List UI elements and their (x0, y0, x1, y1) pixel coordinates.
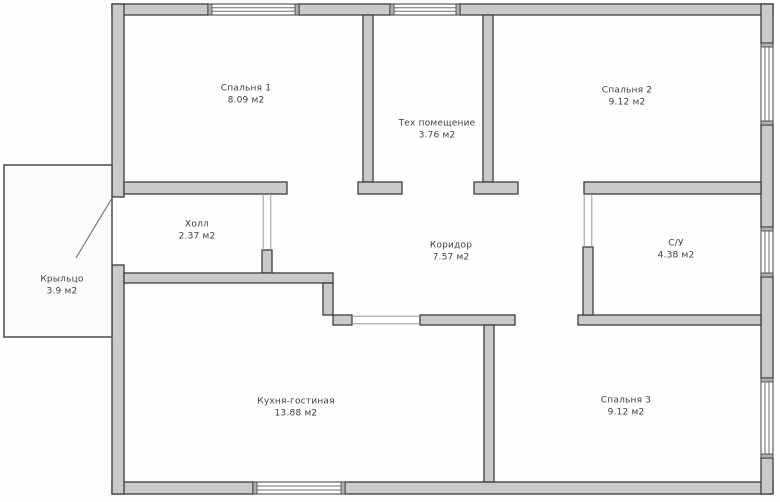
wall-middle-segment (474, 182, 518, 194)
room-area: 9.12 м2 (602, 97, 652, 109)
room-name: Крыльцо (40, 275, 83, 287)
room-area: 3.76 м2 (399, 130, 476, 142)
wall-jog (323, 283, 333, 315)
wall-left-segment (112, 265, 124, 494)
room-label-bathroom: С/У 4.38 м2 (658, 239, 695, 262)
wall-right-segment (761, 458, 773, 494)
room-area: 3.9 м2 (40, 286, 83, 298)
room-label-bedroom-1: Спальня 1 8.09 м2 (221, 84, 271, 107)
wall-right-segment (761, 4, 773, 43)
door-openings (263, 194, 592, 324)
wall-bedroom1-tech (363, 15, 373, 182)
wall-middle-segment (358, 182, 402, 194)
wall-top-segment (112, 4, 208, 15)
wall-corridor-bottom-segment (420, 315, 515, 325)
wall-middle-segment (584, 182, 761, 194)
room-name: Кухня-гостиная (257, 397, 334, 409)
wall-left-segment (112, 4, 124, 197)
room-label-tech-room: Тех помещение 3.76 м2 (399, 119, 476, 142)
room-label-porch: Крыльцо 3.9 м2 (40, 275, 83, 298)
wall-bottom-segment (345, 482, 773, 494)
wall-top-segment (460, 4, 773, 15)
room-area: 4.38 м2 (658, 250, 695, 262)
porch-outline (4, 165, 112, 337)
wall-corridor-bottom-segment (333, 315, 352, 325)
room-name: Тех помещение (399, 119, 476, 131)
room-label-hall: Холл 2.37 м2 (179, 220, 216, 243)
porch (4, 165, 112, 337)
room-label-kitchen-living: Кухня-гостиная 13.88 м2 (257, 397, 334, 420)
wall-right-segment (761, 125, 773, 227)
room-area: 9.12 м2 (601, 407, 651, 419)
window-kitchen (253, 482, 345, 494)
wall-right-segment (761, 277, 773, 378)
wall-tech-bedroom2 (483, 15, 493, 182)
room-name: Коридор (430, 241, 472, 253)
room-area: 8.09 м2 (221, 95, 271, 107)
window-bedroom-1 (208, 4, 299, 15)
window-bathroom (761, 227, 773, 277)
wall-corridor-bottom-segment (578, 315, 761, 325)
room-area: 13.88 м2 (257, 408, 334, 420)
room-label-bedroom-3: Спальня 3 9.12 м2 (601, 396, 651, 419)
room-name: Спальня 3 (601, 396, 651, 408)
wall-middle-segment (124, 182, 287, 194)
wall-hall-bottom (124, 273, 333, 283)
wall-hall-corridor (262, 250, 272, 273)
room-name: Спальня 1 (221, 84, 271, 96)
wall-top-segment (299, 4, 390, 15)
room-area: 2.37 м2 (179, 231, 216, 243)
wall-corridor-bathroom (583, 247, 593, 315)
room-label-bedroom-2: Спальня 2 9.12 м2 (602, 86, 652, 109)
wall-kitchen-bedroom3 (484, 325, 494, 482)
window-bedroom-3 (761, 378, 773, 458)
floor-plan: Спальня 1 8.09 м2 Тех помещение 3.76 м2 … (0, 0, 780, 502)
room-label-corridor: Коридор 7.57 м2 (430, 241, 472, 264)
room-area: 7.57 м2 (430, 252, 472, 264)
window-tech-room (390, 4, 460, 15)
room-name: Холл (179, 220, 216, 232)
room-name: Спальня 2 (602, 86, 652, 98)
wall-bottom-segment (112, 482, 253, 494)
room-name: С/У (658, 239, 695, 251)
window-bedroom-2 (761, 43, 773, 125)
